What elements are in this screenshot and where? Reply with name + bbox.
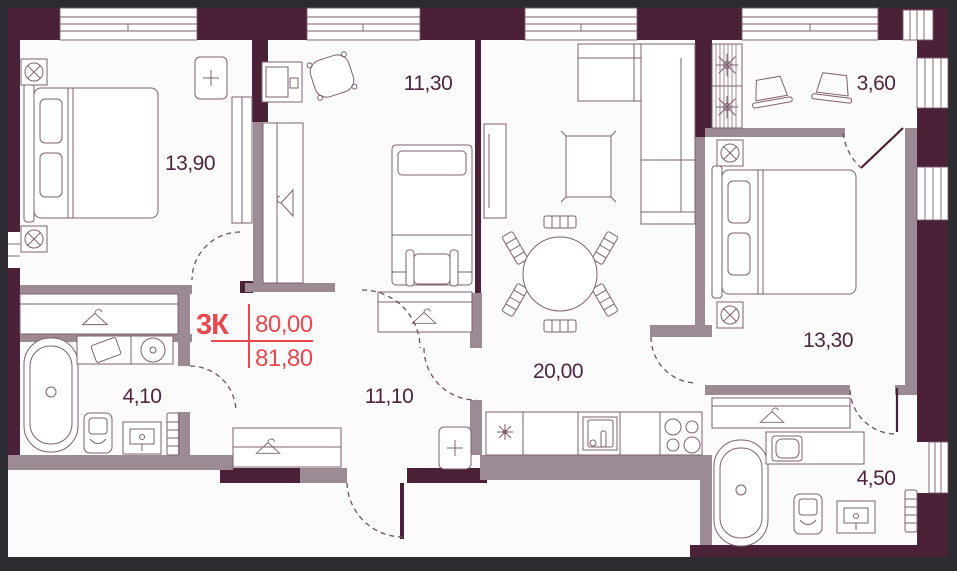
room-label-kitchen-living: 20,00 xyxy=(533,360,583,383)
window-right-loggia xyxy=(917,58,948,108)
closet xyxy=(712,398,850,428)
room-label-bathroom-2: 4,50 xyxy=(857,467,896,490)
washing-machine-icon xyxy=(766,432,864,464)
sink-icon xyxy=(123,422,161,454)
window-top-4 xyxy=(742,8,878,40)
bathtub-icon xyxy=(714,440,768,546)
electric-panel-icon xyxy=(195,57,227,99)
vanity-counter xyxy=(77,336,173,364)
window-right-bathroom xyxy=(929,442,948,493)
double-bed xyxy=(24,84,158,222)
floor-plan-drawing: 13,90 11,30 3,60 13,30 20,00 11,10 4,10 … xyxy=(0,0,957,571)
socket-icon xyxy=(21,226,47,252)
hob-burner-icon xyxy=(497,424,513,440)
desk xyxy=(262,62,302,102)
plant-icon xyxy=(716,96,738,118)
coffee-table xyxy=(561,131,616,202)
closet xyxy=(20,294,178,334)
double-bed xyxy=(712,166,856,298)
sink-icon xyxy=(837,501,875,533)
apartment-area-top: 80,00 xyxy=(255,311,313,338)
room-label-bedroom-2: 11,30 xyxy=(404,72,453,95)
window-top-3 xyxy=(525,8,637,40)
window-right-bedroom xyxy=(917,167,948,220)
socket-icon xyxy=(717,302,743,328)
built-in-wardrobe xyxy=(263,123,303,283)
window-top-2 xyxy=(307,8,420,40)
electric-panel-icon xyxy=(439,427,471,469)
floor-plan: 13,90 11,30 3,60 13,30 20,00 11,10 4,10 … xyxy=(0,0,957,571)
room-label-bedroom-1: 13,90 xyxy=(165,152,215,175)
apartment-type-label: 3К xyxy=(196,309,229,341)
kitchen-counter xyxy=(486,412,702,455)
tv-stand xyxy=(484,124,506,218)
room-label-hallway: 11,10 xyxy=(365,385,414,408)
window-left-notch xyxy=(8,232,20,268)
toilet-icon xyxy=(794,494,822,534)
socket-icon xyxy=(21,59,47,85)
window-top-corner xyxy=(903,10,933,40)
wardrobe xyxy=(232,97,252,223)
bathtub-icon xyxy=(24,338,78,452)
room-label-loggia: 3,60 xyxy=(857,72,896,95)
plant-icon xyxy=(716,54,738,76)
room-label-bathroom-1: 4,10 xyxy=(123,385,162,408)
room-label-bedroom-3: 13,30 xyxy=(803,329,853,352)
single-bed xyxy=(392,145,472,286)
window-top-1 xyxy=(60,8,197,40)
socket-icon xyxy=(717,140,743,166)
apartment-area-bottom: 81,80 xyxy=(255,345,313,372)
toilet-icon xyxy=(84,413,112,453)
hall-closet xyxy=(233,428,341,467)
